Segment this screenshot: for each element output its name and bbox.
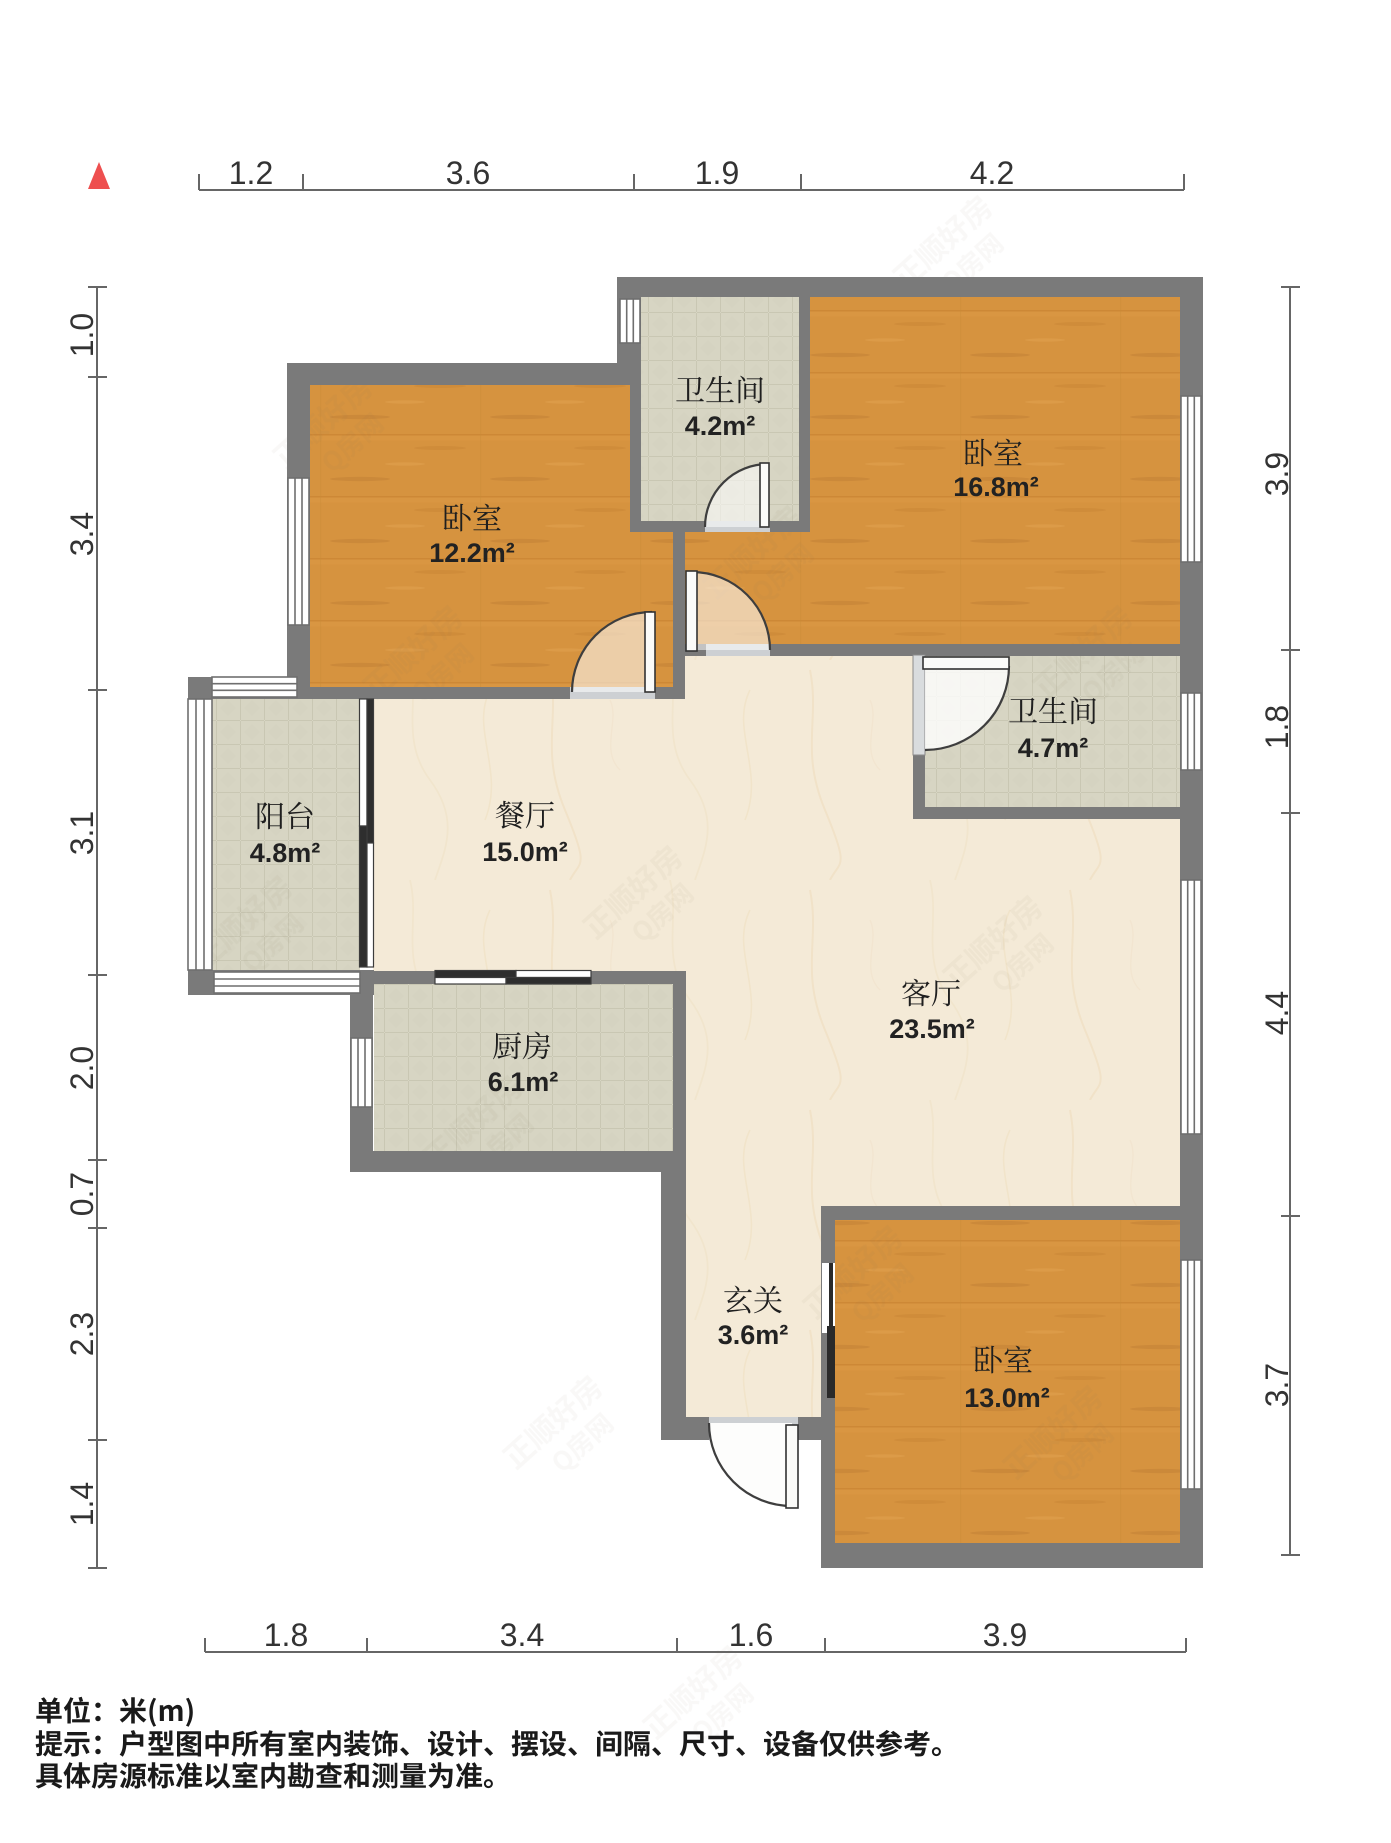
svg-text:3.1: 3.1 [64, 811, 100, 855]
svg-text:13.0m²: 13.0m² [964, 1383, 1050, 1413]
svg-text:2.3: 2.3 [64, 1312, 100, 1356]
svg-text:1.4: 1.4 [64, 1482, 100, 1526]
svg-text:4.4: 4.4 [1259, 991, 1295, 1035]
svg-text:3.4: 3.4 [500, 1617, 544, 1653]
svg-text:1.8: 1.8 [1259, 705, 1295, 749]
svg-text:1.2: 1.2 [229, 155, 273, 191]
svg-text:2.0: 2.0 [64, 1046, 100, 1090]
svg-text:4.7m²: 4.7m² [1018, 733, 1089, 763]
svg-text:23.5m²: 23.5m² [889, 1014, 975, 1044]
svg-text:12.2m²: 12.2m² [429, 538, 515, 568]
svg-text:3.6: 3.6 [446, 155, 490, 191]
svg-text:4.8m²: 4.8m² [250, 838, 321, 868]
svg-text:3.4: 3.4 [64, 512, 100, 556]
svg-text:3.7: 3.7 [1259, 1363, 1295, 1407]
svg-text:1.8: 1.8 [264, 1617, 308, 1653]
svg-text:3.6m²: 3.6m² [718, 1320, 789, 1350]
svg-text:3.9: 3.9 [1259, 452, 1295, 496]
svg-text:1.0: 1.0 [64, 313, 100, 357]
svg-text:0.7: 0.7 [64, 1172, 100, 1216]
svg-text:4.2: 4.2 [970, 155, 1014, 191]
svg-text:16.8m²: 16.8m² [953, 472, 1039, 502]
svg-text:3.9: 3.9 [983, 1617, 1027, 1653]
svg-text:15.0m²: 15.0m² [482, 837, 568, 867]
svg-text:6.1m²: 6.1m² [488, 1067, 559, 1097]
svg-text:1.6: 1.6 [729, 1617, 773, 1653]
svg-text:1.9: 1.9 [695, 155, 739, 191]
svg-text:4.2m²: 4.2m² [685, 411, 756, 441]
